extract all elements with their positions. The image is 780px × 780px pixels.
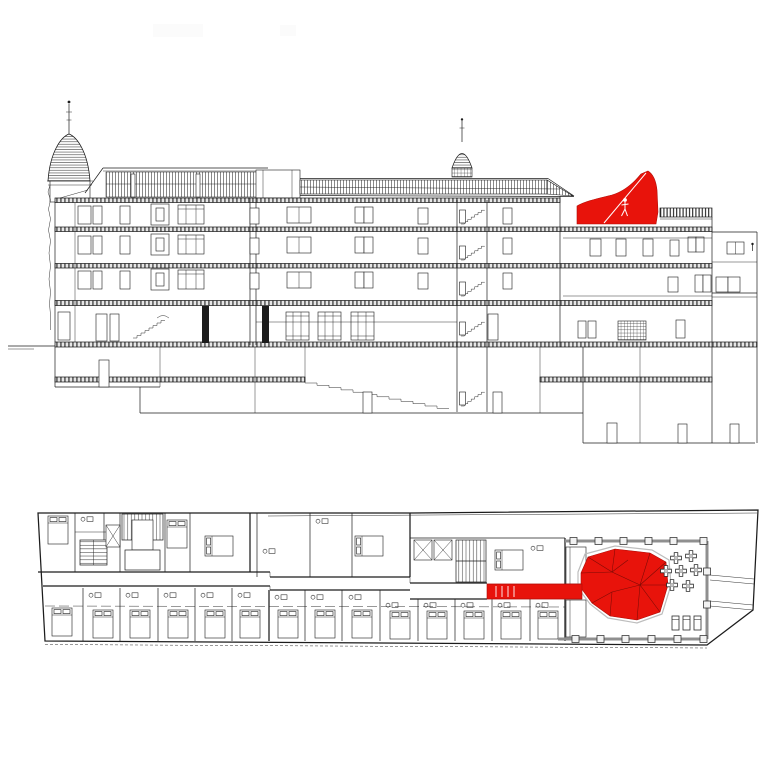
plan-view [38,510,758,648]
plan-corridor [43,577,487,599]
tall-window [351,312,374,340]
window-row [78,234,512,255]
roof-balustrade [660,208,712,219]
ground-floor [58,312,498,341]
tiny-figure-icon [751,243,753,251]
tall-window [318,312,341,340]
windows-upper-floors [78,204,512,290]
roof-bulkhead [256,170,300,198]
right-block [563,237,740,340]
window-row [78,269,512,290]
tall-window [286,312,309,340]
mid-cupola [452,118,472,177]
roof-pavilion-highlight [577,171,658,224]
architectural-drawing [0,0,780,780]
terrace-tables [661,551,702,592]
drawing-canvas [0,0,780,780]
penthouse-glazing [60,168,268,198]
plan-stair-core-left [80,514,163,570]
section-walls [55,196,757,443]
elevator [434,540,452,560]
section-view [8,101,757,443]
stair-tower [460,210,485,406]
tower-dome [47,101,93,202]
elevator [106,525,120,547]
terrain-edge [8,185,56,349]
basement [55,347,755,443]
terrace-loungers [672,616,701,630]
elevator [414,540,432,560]
window-row [78,204,512,225]
faint-print-artifact [153,24,296,37]
skylight-band [300,179,574,197]
